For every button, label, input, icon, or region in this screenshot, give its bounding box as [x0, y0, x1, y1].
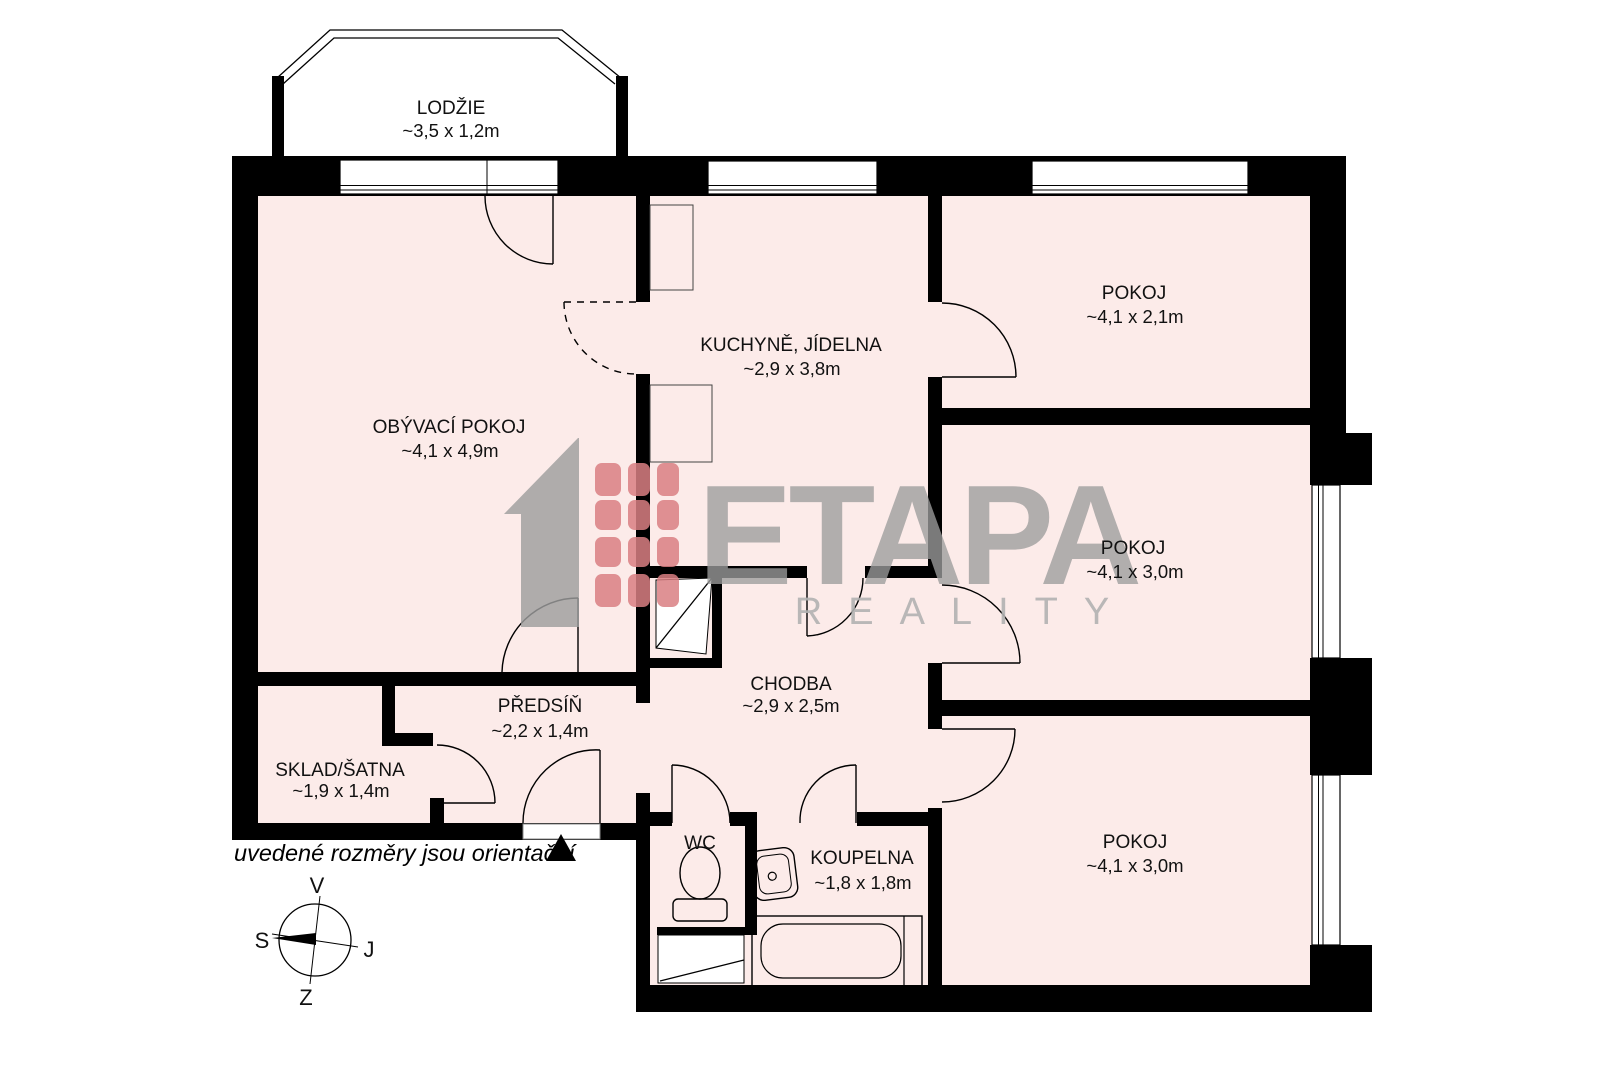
wall-spine-a — [636, 196, 650, 302]
room-label-obyvaci-pokoj: OBÝVACÍ POKOJ — [373, 417, 526, 438]
compass-label-right: J — [364, 937, 375, 962]
wall-shaft2-top — [657, 927, 745, 935]
window-living — [340, 160, 558, 194]
wall-sklad-horiz — [382, 733, 433, 746]
floorplan-svg: ETAPA REALITY LODŽIE ~3,5 x 1,2m OBÝVACÍ… — [0, 0, 1600, 1067]
room-dims-kuchyne: ~2,9 x 3,8m — [743, 358, 840, 379]
room-dims-lodzie: ~3,5 x 1,2m — [402, 120, 499, 141]
room-label-wc: WC — [684, 833, 716, 854]
wall-mid-vert-a — [928, 196, 942, 302]
wall-chodba-bottom-b — [730, 812, 757, 826]
shaft-wc — [658, 935, 744, 983]
loggia-parapet-inner — [283, 38, 615, 84]
room-label-kuchyne: KUCHYNĚ, JÍDELNA — [700, 334, 882, 356]
wall-bottom-right — [636, 985, 1372, 1012]
wall-shaft1-bottom — [650, 658, 722, 668]
compass-label-bottom: Z — [299, 985, 312, 1010]
wall-living-hall — [232, 672, 650, 686]
wall-chodba-bottom-a — [650, 812, 672, 826]
loggia-pillar-left — [272, 76, 284, 164]
room-dims-pokoj-top: ~4,1 x 2,1m — [1086, 306, 1183, 327]
wall-spine-c — [636, 793, 650, 1012]
window-pokoj-mid — [1312, 485, 1340, 658]
room-label-sklad: SKLAD/ŠATNA — [275, 759, 405, 781]
wall-pokoj2-pokoj3 — [942, 700, 1310, 716]
wall-sklad-vert — [382, 686, 395, 740]
watermark-subtitle-text: REALITY — [795, 591, 1135, 633]
room-label-predsin: PŘEDSÍŇ — [498, 695, 582, 717]
wall-chodba-bottom-c — [857, 812, 928, 826]
compass-label-left: S — [255, 928, 270, 953]
room-dims-predsin: ~2,2 x 1,4m — [491, 720, 588, 741]
room-label-lodzie: LODŽIE — [417, 97, 486, 119]
room-dims-pokoj-mid: ~4,1 x 3,0m — [1086, 561, 1183, 582]
window-pokoj-top — [1032, 161, 1248, 194]
wall-right-jog1 — [1310, 433, 1372, 485]
loggia-parapet — [277, 30, 621, 84]
room-label-koupelna: KOUPELNA — [810, 848, 914, 869]
room-dims-obyvaci-pokoj: ~4,1 x 4,9m — [401, 440, 498, 461]
wall-right-upper — [1310, 156, 1346, 433]
wall-sklad-stub — [430, 798, 444, 825]
wall-mid-vert-c — [928, 663, 942, 729]
wall-wc-koupelna — [745, 826, 757, 935]
window-kitchen — [708, 161, 877, 194]
floorplan-page: ETAPA REALITY LODŽIE ~3,5 x 1,2m OBÝVACÍ… — [0, 0, 1600, 1067]
loggia-pillar-right — [616, 76, 628, 164]
wall-right-jog3 — [1310, 945, 1372, 1012]
room-label-chodba: CHODBA — [750, 674, 832, 695]
wall-right-jog2 — [1310, 658, 1372, 775]
room-dims-chodba: ~2,9 x 2,5m — [742, 695, 839, 716]
compass-label-top: V — [310, 873, 325, 898]
room-label-pokoj-bottom: POKOJ — [1103, 832, 1167, 853]
room-label-pokoj-mid: POKOJ — [1101, 538, 1165, 559]
room-label-pokoj-top: POKOJ — [1102, 283, 1166, 304]
wall-left — [232, 156, 258, 840]
loggia-parapet-outer — [277, 30, 621, 78]
wall-pokoj1-pokoj2 — [942, 408, 1310, 425]
compass-rose: V J Z S — [255, 873, 375, 1010]
room-dims-koupelna: ~1,8 x 1,8m — [814, 872, 911, 893]
room-dims-sklad: ~1,9 x 1,4m — [292, 780, 389, 801]
window-pokoj-bottom — [1312, 775, 1340, 945]
disclaimer-text: uvedené rozměry jsou orientační — [234, 840, 577, 866]
wall-mid-vert-d — [928, 808, 942, 985]
room-dims-pokoj-bottom: ~4,1 x 3,0m — [1086, 855, 1183, 876]
